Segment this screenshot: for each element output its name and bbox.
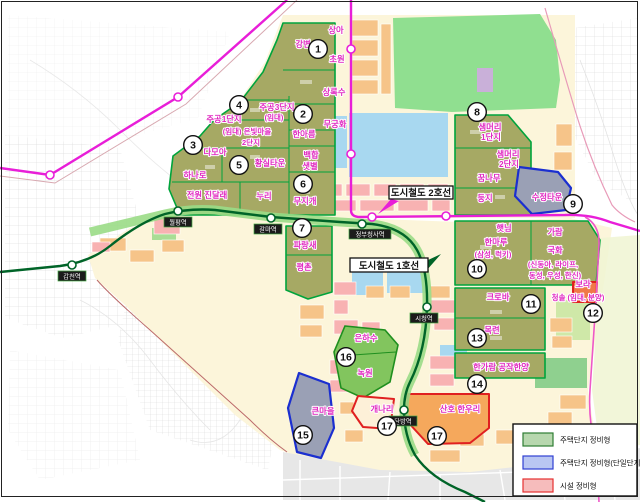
area-label: (임대) bbox=[265, 112, 284, 122]
numbered-marker: 10 bbox=[468, 260, 487, 279]
area-label: 한아름 bbox=[293, 129, 316, 139]
area-label: 수정타운 bbox=[532, 192, 563, 202]
numbered-marker: 17 bbox=[428, 427, 447, 446]
marker-number: 2 bbox=[300, 109, 306, 121]
numbered-marker: 14 bbox=[468, 375, 487, 394]
marker-number: 11 bbox=[525, 299, 536, 311]
line2-label: 도시철도 2호선 bbox=[391, 187, 451, 199]
legend-label-single: 주택단지 정비형(단일단지) bbox=[560, 458, 640, 468]
marker-number: 16 bbox=[340, 352, 352, 364]
numbered-marker: 2 bbox=[294, 105, 313, 124]
area-label: 큰마을 bbox=[312, 406, 335, 416]
marker-number: 9 bbox=[570, 199, 576, 211]
numbered-marker: 7 bbox=[293, 219, 312, 238]
station-label: 갑천역 bbox=[63, 272, 80, 281]
area-label: 다모아 bbox=[204, 147, 227, 157]
numbered-marker: 3 bbox=[184, 136, 203, 155]
area-label: 꿈나무 bbox=[478, 173, 501, 183]
legend: 주택단지 정비형 주택단지 정비형(단일단지) 시설 정비형 bbox=[513, 424, 640, 496]
area-label: 은하수 bbox=[355, 333, 378, 343]
area-label: 초원 bbox=[329, 54, 344, 64]
metro-station-dot bbox=[368, 213, 376, 221]
area-label: 햇님 bbox=[496, 223, 511, 233]
area-label: 상아 bbox=[328, 25, 344, 35]
station-label: 월평역 bbox=[169, 218, 186, 227]
station-label: 탄방역 bbox=[394, 417, 411, 426]
numbered-marker: 15 bbox=[294, 426, 313, 445]
marker-number: 17 bbox=[431, 431, 443, 443]
area-label: 개나리 bbox=[371, 404, 394, 414]
area-label: 둥지 bbox=[477, 193, 492, 203]
legend-swatch-facility bbox=[523, 479, 553, 492]
area-label: 한가람 공작한양 bbox=[473, 362, 529, 372]
numbered-marker: 4 bbox=[230, 96, 249, 115]
metro-station-dot bbox=[442, 212, 450, 220]
marker-number: 3 bbox=[190, 140, 196, 152]
area-label: 주공3단지 bbox=[259, 102, 294, 112]
metro-station-dot bbox=[347, 150, 355, 158]
legend-swatch-housing bbox=[523, 433, 553, 446]
area-label: 백합 bbox=[303, 150, 319, 160]
metro-station-dot bbox=[174, 93, 182, 101]
marker-number: 5 bbox=[236, 160, 242, 172]
metro-station-dot bbox=[358, 220, 366, 228]
numbered-marker: 9 bbox=[564, 195, 583, 214]
area-label: 가람 bbox=[547, 227, 563, 237]
area-label: 목련 bbox=[484, 325, 499, 335]
line1-label: 도시철도 1호선 bbox=[359, 260, 419, 272]
marker-number: 15 bbox=[297, 430, 309, 442]
numbered-marker: 8 bbox=[468, 103, 487, 122]
metro-station-dot bbox=[68, 261, 76, 269]
area-label: 한마루 bbox=[485, 237, 508, 247]
area-label: 샘머리 bbox=[479, 122, 502, 132]
area-label: 무궁화 bbox=[324, 119, 347, 129]
map-canvas: 갑천역월평역갈마역정부청사역시청역탄방역 상아강변초원상록수주공3단지(임대)무… bbox=[0, 0, 640, 502]
marker-number: 4 bbox=[236, 100, 242, 112]
area-label: 녹원 bbox=[357, 368, 372, 378]
area-label: 주공1단지 bbox=[206, 114, 241, 124]
area-label: 전원 진달래 bbox=[187, 190, 227, 200]
station-label: 정부청사역 bbox=[356, 230, 385, 239]
area-label: 2단지 bbox=[242, 137, 260, 147]
marker-number: 17 bbox=[381, 421, 393, 433]
numbered-marker: 13 bbox=[468, 329, 487, 348]
metro-station-dot bbox=[267, 214, 275, 222]
numbered-marker: 6 bbox=[294, 175, 313, 194]
area-label: 평촌 bbox=[296, 262, 312, 272]
area-label: 2단지 bbox=[499, 159, 519, 169]
marker-number: 7 bbox=[299, 223, 305, 235]
numbered-marker: 12 bbox=[584, 304, 603, 323]
area-label: 황실타운 bbox=[255, 158, 286, 168]
area-label: 산호 한우리 bbox=[440, 404, 480, 414]
area-label: 1단지 bbox=[481, 132, 501, 142]
area-label: 보라 bbox=[575, 279, 591, 289]
metro-station-dot bbox=[46, 171, 54, 179]
metro-station-dot bbox=[423, 303, 431, 311]
area-label: 크로바 bbox=[487, 292, 510, 302]
marker-number: 6 bbox=[300, 179, 306, 191]
city-plan-map: 갑천역월평역갈마역정부청사역시청역탄방역 상아강변초원상록수주공3단지(임대)무… bbox=[0, 0, 640, 502]
marker-number: 8 bbox=[474, 107, 480, 119]
area-label: (임대) 은빛마을 bbox=[223, 126, 272, 136]
station-label: 시청역 bbox=[415, 314, 432, 323]
marker-number: 12 bbox=[587, 308, 599, 320]
marker-number: 1 bbox=[315, 44, 321, 56]
area-label: 하나로 bbox=[184, 170, 207, 180]
area-label: 파랑새 bbox=[294, 240, 317, 250]
numbered-marker: 5 bbox=[230, 156, 249, 175]
numbered-marker: 17 bbox=[378, 417, 397, 436]
area-label: 무지개 bbox=[294, 196, 317, 206]
area-label: 청솔 (임대, 분양) bbox=[552, 292, 605, 302]
metro-station-dot bbox=[347, 45, 355, 53]
marker-number: 10 bbox=[471, 264, 483, 276]
legend-label-facility: 시설 정비형 bbox=[560, 481, 597, 491]
numbered-marker: 11 bbox=[522, 295, 541, 314]
marker-number: 14 bbox=[471, 379, 483, 391]
area-label: 동성, 우성, 한신) bbox=[529, 270, 582, 280]
area-label: 상록수 bbox=[323, 87, 346, 97]
numbered-marker: 1 bbox=[309, 40, 328, 59]
station-label: 갈마역 bbox=[259, 225, 276, 234]
area-label: (삼성, 럭키) bbox=[475, 249, 512, 259]
area-label: 샘머리 bbox=[497, 149, 520, 159]
area-label: (신동아, 라이프, bbox=[528, 259, 578, 269]
area-label: 국화 bbox=[547, 245, 563, 255]
metro-station-dot bbox=[174, 207, 182, 215]
numbered-marker: 16 bbox=[337, 348, 356, 367]
marker-number: 13 bbox=[471, 333, 483, 345]
metro-station-dot bbox=[400, 406, 408, 414]
area-label: 누리 bbox=[256, 191, 271, 201]
area-label: 샛별 bbox=[302, 161, 318, 171]
legend-label-housing: 주택단지 정비형 bbox=[560, 435, 610, 445]
legend-swatch-single bbox=[523, 456, 553, 469]
